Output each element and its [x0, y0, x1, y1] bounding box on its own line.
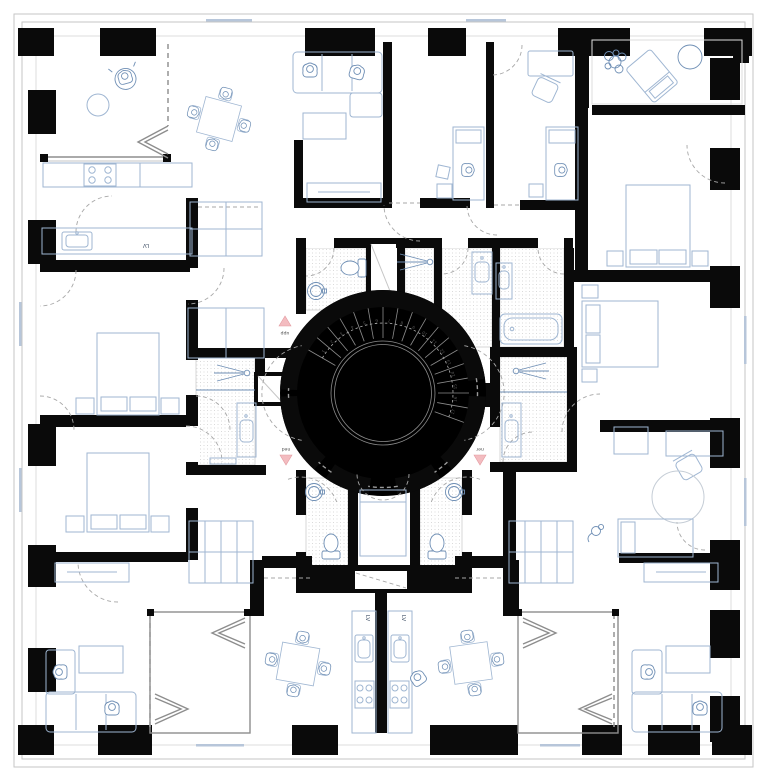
dining-set-icon: [180, 80, 258, 158]
apartment-top-middle: [293, 51, 578, 202]
kitchen-counter-icon: [352, 611, 376, 733]
elevator-lobby: [360, 490, 406, 556]
stove-icon: [390, 681, 409, 708]
nightstand-icon: [607, 251, 623, 266]
lounge-chair-icon: [626, 49, 679, 103]
coffee-table-icon: [303, 113, 346, 139]
person-icon: [693, 701, 707, 715]
round-table-icon: [87, 94, 109, 116]
nightstand-icon: [582, 369, 597, 382]
stove-icon: [84, 164, 116, 186]
kitchen-counter-icon: LV: [42, 163, 192, 254]
nightstand-icon: [437, 184, 452, 198]
balcony-right: [518, 612, 618, 733]
coffee-table-icon: [666, 646, 710, 673]
cat-icon: [588, 524, 604, 542]
floor-plan-drawing: 1234567891011121314151617: [0, 0, 767, 781]
down-arrow-icon: [280, 455, 292, 465]
nightstand-icon: [66, 516, 84, 532]
double-bed-icon: [582, 301, 658, 367]
person-icon: [348, 63, 365, 80]
person-icon: [53, 665, 67, 679]
up-arrow-icon: [279, 316, 291, 326]
apartment-top-right: [605, 45, 709, 267]
wardrobe-icon: [190, 202, 262, 256]
person-icon: [105, 701, 119, 715]
round-rug-icon: [652, 471, 704, 523]
sink-icon: [62, 232, 92, 250]
round-table-icon: [678, 45, 702, 69]
tv-sideboard-icon: [55, 563, 129, 582]
apartment-middle-left: [76, 333, 179, 415]
apartment-bottom-right: [618, 519, 722, 732]
nightstand-icon: [529, 184, 543, 197]
down-arrow-icon: [474, 455, 486, 465]
double-bed-icon: [97, 333, 159, 415]
sofa-icon: [293, 52, 382, 117]
coffee-table-icon: [79, 646, 123, 673]
stair-up-label: upp: [281, 330, 290, 335]
dining-set-icon: [260, 626, 336, 702]
sink-icon: [355, 635, 373, 662]
person-icon: [462, 164, 475, 177]
nightstand-icon: [76, 398, 94, 414]
sofa-icon: [632, 650, 722, 732]
nightstand-icon: [582, 285, 598, 298]
stair-down-left-label: ned: [282, 446, 291, 452]
sink-icon: [391, 635, 409, 662]
desk-chair-icon: [673, 450, 704, 481]
side-table-icon: [436, 165, 450, 179]
dishwasher-label: LV: [400, 615, 406, 621]
desk-chair-icon: [531, 74, 561, 104]
apartment-middle-right: [582, 285, 723, 542]
stair-down-right-label: ner: [476, 446, 484, 452]
stair-step-number: 15: [452, 384, 457, 390]
person-icon: [641, 665, 655, 679]
floor-plan-canvas: 1234567891011121314151617: [0, 0, 767, 781]
dishwasher-label: LV: [364, 615, 370, 621]
dishwasher-label: LV: [143, 242, 149, 248]
nightstand-icon: [161, 398, 179, 414]
double-bed-icon: [626, 185, 690, 267]
person-icon: [555, 164, 568, 177]
person-icon: [408, 668, 428, 688]
dining-set-icon: [434, 626, 508, 700]
tv-sideboard-icon: [644, 563, 718, 582]
balcony-left: [150, 612, 250, 733]
wheelchair-person-icon: [108, 62, 141, 93]
bathroom-right-floor: [500, 357, 567, 462]
stove-icon: [355, 681, 374, 708]
single-bed-icon: [618, 519, 693, 557]
double-bed-icon: [87, 453, 149, 532]
glass-partition-top-left: [40, 44, 171, 162]
nightstand-icon: [692, 251, 708, 266]
nightstand-icon: [151, 516, 169, 532]
bathroom-left-floor: [196, 358, 255, 465]
wardrobe-icon: [189, 521, 253, 583]
person-icon: [303, 63, 317, 77]
kitchen-counter-icon: [388, 611, 412, 733]
stair-step-number: 16: [452, 396, 457, 402]
